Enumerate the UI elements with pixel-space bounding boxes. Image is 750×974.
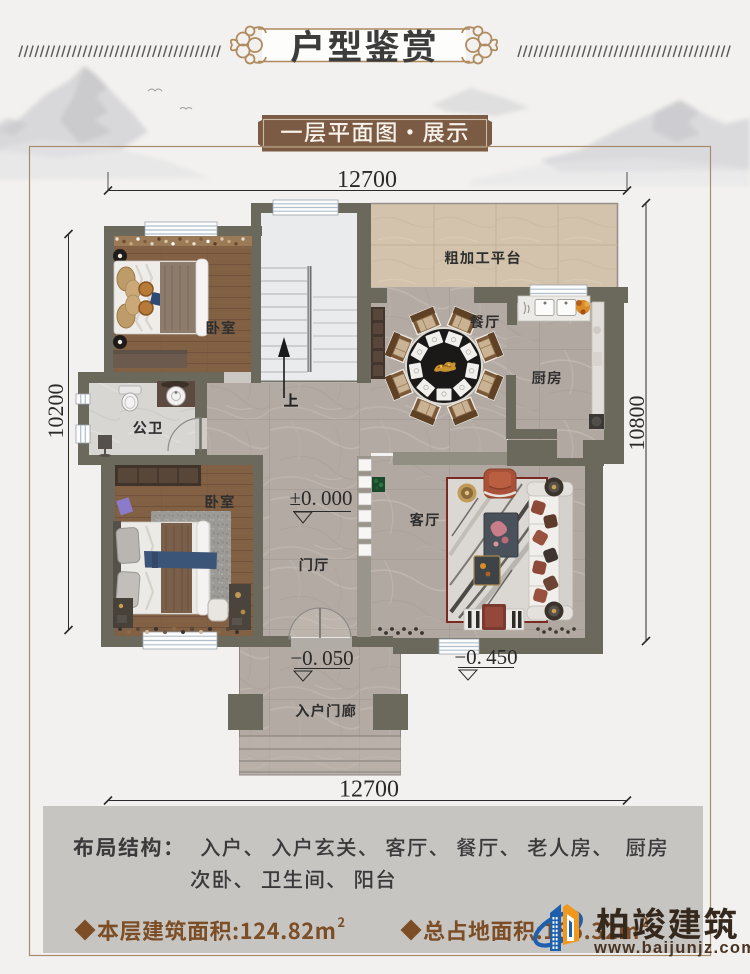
svg-text:12700: 12700 [337, 167, 397, 193]
svg-text:±0. 000: ±0. 000 [290, 486, 353, 510]
svg-text:−0. 450: −0. 450 [454, 645, 517, 669]
svg-text:10800: 10800 [624, 396, 649, 451]
svg-text:−0. 050: −0. 050 [290, 646, 353, 670]
svg-text:10200: 10200 [43, 384, 68, 439]
svg-text:www.baijunjz.com: www.baijunjz.com [593, 939, 750, 957]
svg-text:12700: 12700 [339, 777, 399, 803]
